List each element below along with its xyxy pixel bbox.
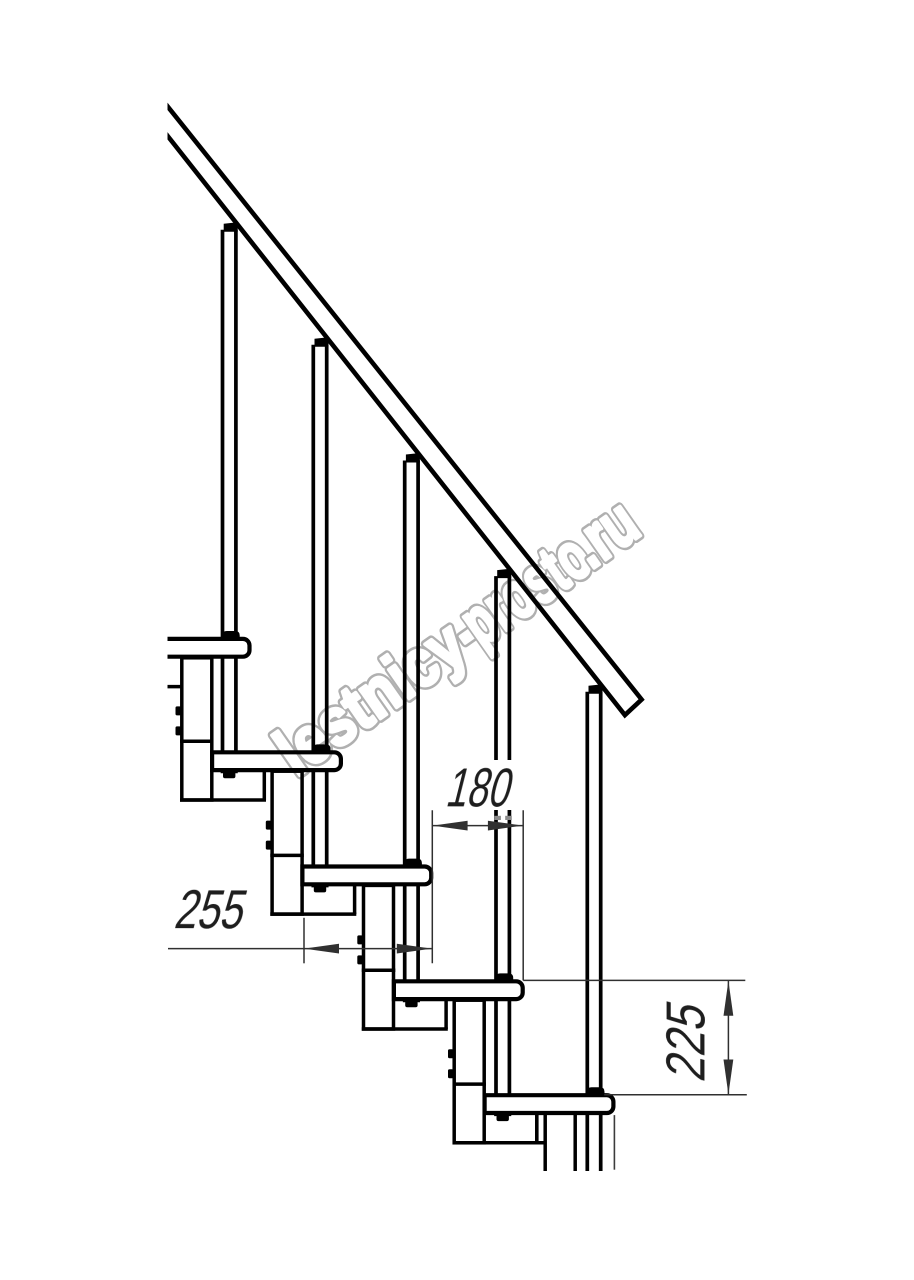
- svg-text:225: 225: [654, 994, 716, 1085]
